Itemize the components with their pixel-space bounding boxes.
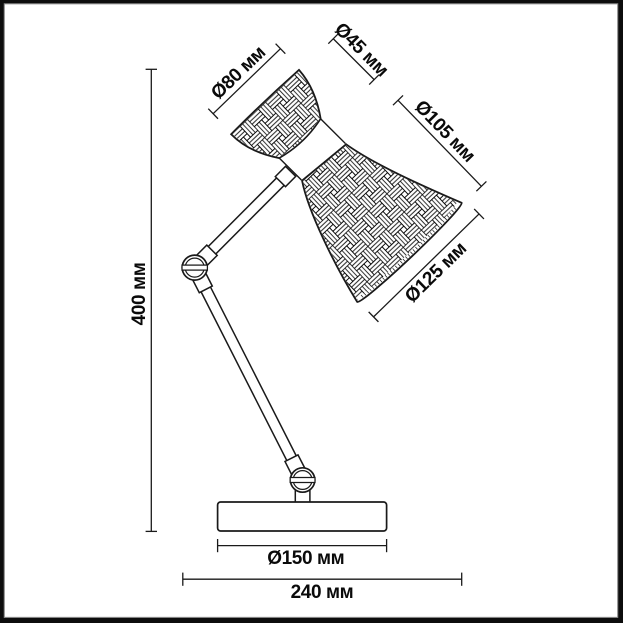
svg-text:Ø150 мм: Ø150 мм (267, 548, 344, 569)
svg-text:240 мм: 240 мм (291, 582, 354, 603)
svg-text:400 мм: 400 мм (129, 263, 150, 326)
